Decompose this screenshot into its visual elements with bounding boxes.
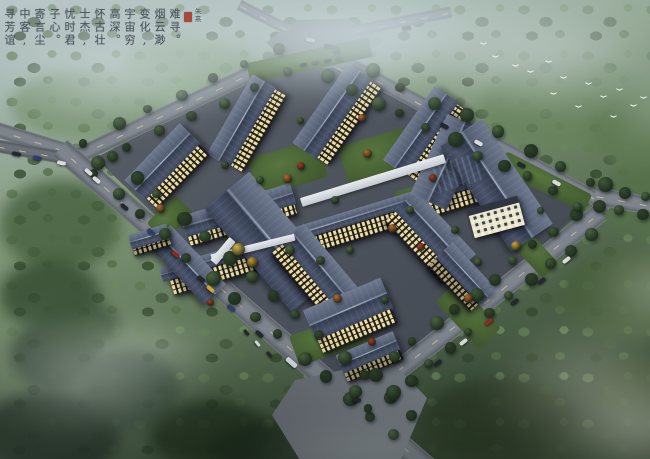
street-tree	[206, 271, 221, 286]
campus-tree	[221, 161, 229, 169]
street-tree	[365, 412, 375, 422]
street-tree	[424, 359, 433, 368]
forest-patch	[0, 260, 100, 330]
campus-tree	[474, 258, 482, 266]
street-tree	[445, 342, 456, 353]
campus-tree	[381, 296, 389, 304]
bird	[575, 105, 582, 109]
campus-tree	[232, 243, 245, 256]
street-tree	[386, 385, 401, 400]
calligraphy-column: 烟云渺	[154, 8, 165, 47]
campus-tree	[297, 117, 304, 124]
street-tree	[545, 258, 556, 269]
street-tree	[290, 310, 299, 319]
calligraphy-signature: 朱熹	[184, 8, 202, 23]
calligraphy-column: 宇宙穷	[124, 8, 135, 47]
street-tree	[598, 177, 613, 192]
street-tree	[131, 171, 144, 184]
street-tree	[199, 231, 210, 242]
red-seal-stamp	[184, 12, 192, 22]
campus-tree	[429, 174, 437, 182]
calligraphy-column: 士杰,	[79, 8, 90, 49]
campus-tree	[283, 174, 292, 183]
street-tree	[246, 271, 258, 283]
street-tree	[472, 151, 483, 162]
street-tree	[240, 60, 248, 68]
street-tree	[176, 90, 187, 101]
bird	[610, 115, 617, 119]
calligraphy-column: 变化,	[139, 8, 150, 49]
campus-tree	[417, 243, 425, 251]
street-tree	[366, 63, 381, 78]
bird	[630, 104, 637, 108]
campus-tree	[256, 176, 264, 184]
street-tree	[523, 171, 532, 180]
architectural-rendering: 朱熹难寻。烟云渺变化,宇宙穷高深。怀古壮士杰,忧时君子心。寄言尘中客,寻芳谊	[0, 0, 650, 459]
street-tree	[448, 132, 463, 147]
bird	[550, 92, 557, 96]
bird	[480, 42, 487, 46]
campus-tree	[368, 338, 376, 346]
street-tree	[143, 105, 152, 114]
campus-tree	[451, 226, 459, 234]
street-tree	[573, 202, 582, 211]
street-tree	[484, 308, 494, 318]
street-tree	[548, 227, 558, 237]
calligraphy-column: 怀古壮	[94, 8, 105, 47]
street-tree	[395, 109, 403, 117]
street-tree	[408, 337, 417, 346]
calligraphy-column: 中客,	[19, 8, 30, 49]
calligraphy-column: 子心。	[49, 8, 60, 47]
street-tree	[186, 111, 196, 121]
campus-tree	[207, 299, 214, 306]
calligraphy-column: 寻芳谊	[4, 8, 15, 47]
street-tree	[641, 192, 650, 201]
bird	[560, 76, 567, 80]
bird	[640, 96, 647, 100]
campus-tree	[511, 241, 521, 251]
bird	[545, 60, 552, 64]
street-tree	[585, 228, 597, 240]
campus-tree	[358, 114, 366, 122]
street-tree	[107, 151, 118, 162]
calligraphy-column: 高深。	[109, 8, 120, 47]
calligraphy-column: 寄言尘	[34, 8, 45, 47]
street-tree	[498, 160, 510, 172]
street-tree	[273, 43, 285, 55]
street-tree	[320, 370, 332, 382]
street-tree	[406, 410, 417, 421]
campus-tree	[388, 224, 397, 233]
bird	[512, 64, 519, 68]
street-tree	[159, 228, 171, 240]
campus-tree	[464, 294, 473, 303]
street-tree	[489, 274, 501, 286]
campus-tree	[406, 206, 414, 214]
calligraphy-poem: 朱熹难寻。烟云渺变化,宇宙穷高深。怀古壮士杰,忧时君子心。寄言尘中客,寻芳谊	[4, 8, 202, 78]
campus-tree	[333, 294, 342, 303]
bird	[527, 70, 534, 74]
street-tree	[492, 125, 505, 138]
campus-tree	[285, 245, 295, 255]
calligraphy-column: 忧时君	[64, 8, 75, 47]
bird	[585, 82, 592, 86]
street-tree	[338, 351, 352, 365]
calligraphy-column: 难寻。	[169, 8, 180, 47]
campus-tree	[156, 204, 165, 213]
street-tree	[79, 139, 87, 147]
bird	[616, 88, 623, 92]
street-tree	[152, 190, 160, 198]
street-tree	[250, 312, 261, 323]
campus-tree	[297, 162, 305, 170]
campus-tree	[331, 196, 339, 204]
street-tree	[548, 186, 558, 196]
campus-tree	[346, 246, 354, 254]
street-tree	[283, 67, 292, 76]
campus-tree	[537, 207, 544, 214]
campus-tree	[316, 256, 325, 265]
street-tree	[208, 73, 218, 83]
campus-tree	[363, 149, 372, 158]
street-tree	[154, 125, 165, 136]
bird	[492, 55, 499, 59]
street-tree	[122, 143, 131, 152]
street-tree	[268, 290, 279, 301]
street-tree	[372, 97, 386, 111]
street-tree	[135, 209, 145, 219]
street-tree	[460, 108, 474, 122]
campus-tree	[247, 257, 258, 268]
street-tree	[428, 97, 441, 110]
street-tree	[637, 209, 648, 220]
bird	[600, 95, 607, 99]
street-tree	[314, 330, 324, 340]
car	[352, 398, 361, 402]
